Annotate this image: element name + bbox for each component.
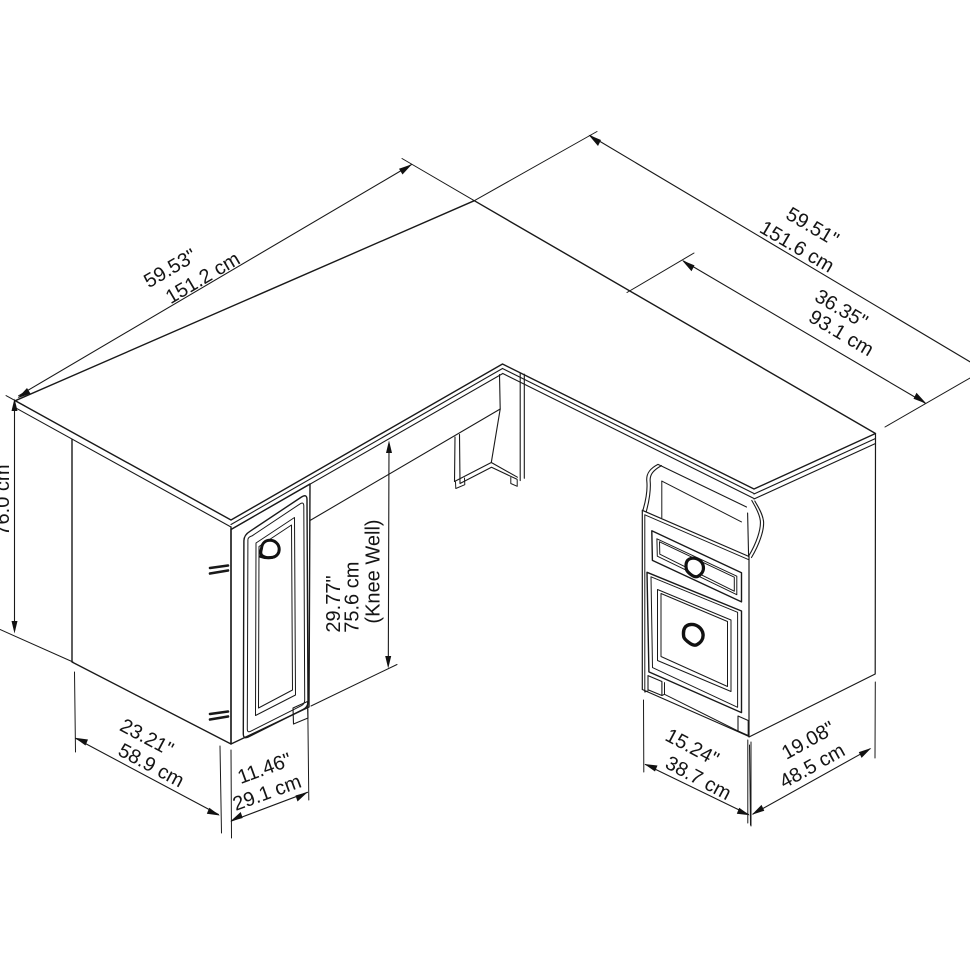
svg-text:75.6 cm: 75.6 cm <box>342 562 364 633</box>
svg-text:(Knee Well): (Knee Well) <box>363 519 385 623</box>
svg-text:76.0 cm: 76.0 cm <box>0 464 14 535</box>
